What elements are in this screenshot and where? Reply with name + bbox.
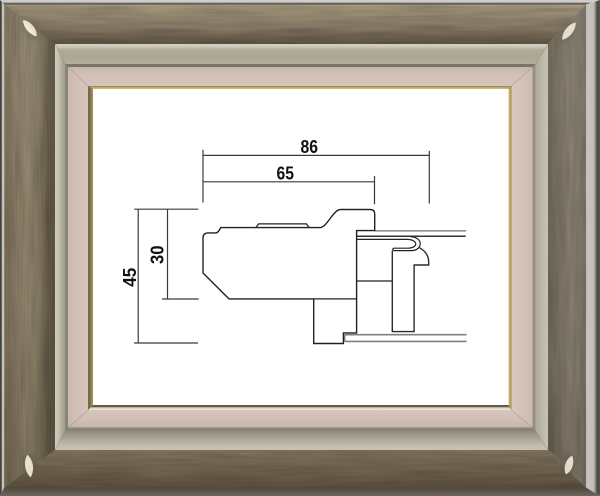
svg-text:65: 65 bbox=[276, 162, 294, 183]
svg-text:30: 30 bbox=[147, 245, 168, 264]
svg-text:45: 45 bbox=[119, 268, 140, 287]
svg-text:86: 86 bbox=[301, 136, 319, 157]
